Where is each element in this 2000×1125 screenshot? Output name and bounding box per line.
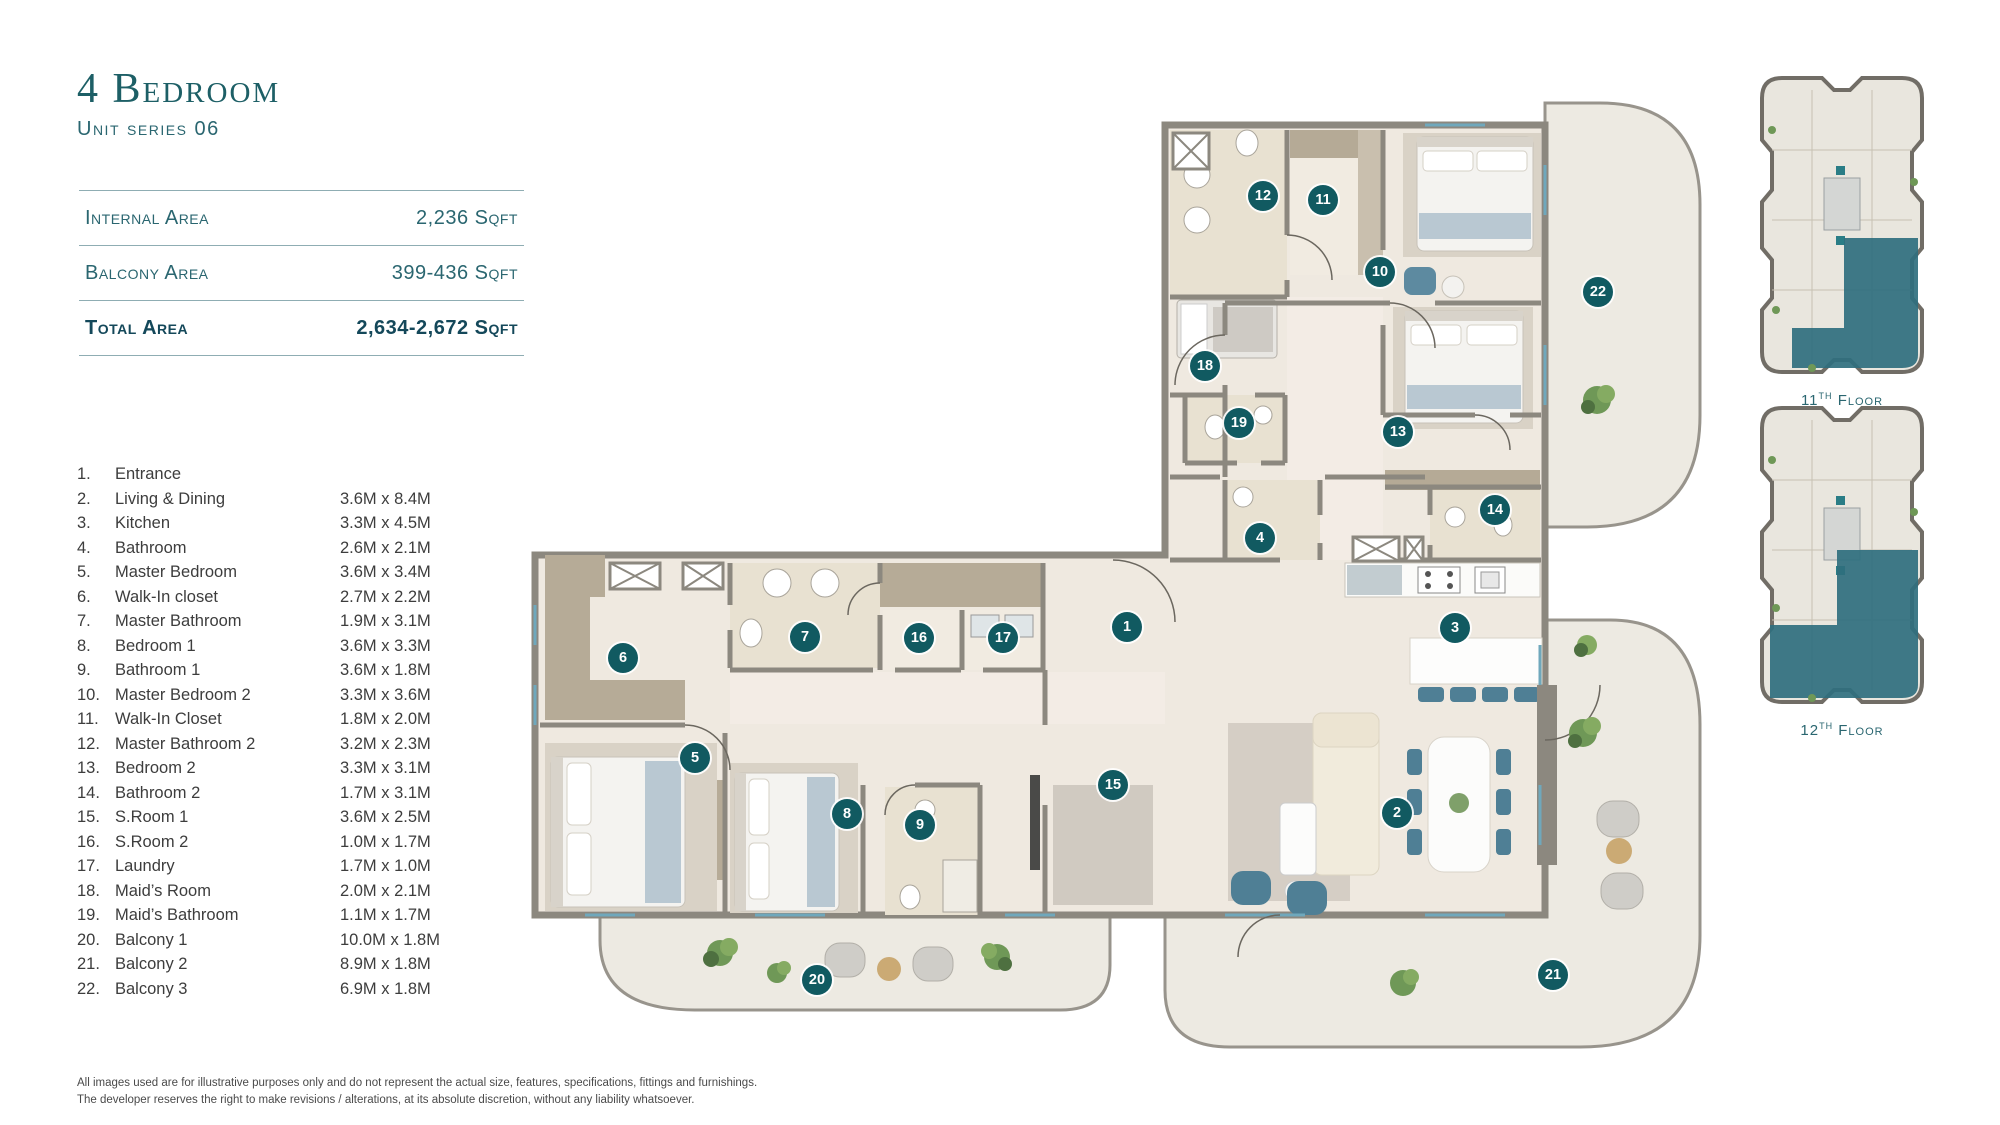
legend-dims: 8.9M x 1.8M (340, 952, 497, 977)
legend-row: 8.Bedroom 13.6M x 3.3M (77, 634, 497, 659)
legend-name: Walk-In closet (115, 585, 340, 610)
keyplan-12th-drawing (1752, 400, 1932, 710)
disclaimer: All images used are for illustrative pur… (77, 1075, 757, 1109)
plan-badge-11: 11 (1308, 185, 1338, 215)
area-row-total: Total Area 2,634-2,672 Sqft (79, 301, 524, 356)
legend-name: Bathroom 2 (115, 781, 340, 806)
floor-ordinal: TH (1819, 721, 1833, 731)
legend-row: 16.S.Room 21.0M x 1.7M (77, 830, 497, 855)
area-value: 2,634-2,672 Sqft (356, 317, 518, 340)
legend-name: S.Room 1 (115, 805, 340, 830)
legend-name: S.Room 2 (115, 830, 340, 855)
legend-no: 16. (77, 830, 115, 855)
legend-name: Bedroom 1 (115, 634, 340, 659)
plan-badge-16: 16 (904, 623, 934, 653)
legend-no: 20. (77, 928, 115, 953)
balcony-3 (1545, 103, 1700, 527)
plan-badge-17: 17 (988, 623, 1018, 653)
legend-row: 21.Balcony 28.9M x 1.8M (77, 952, 497, 977)
legend-no: 22. (77, 977, 115, 1002)
page-title: 4 Bedroom (77, 68, 280, 110)
legend-row: 4.Bathroom2.6M x 2.1M (77, 536, 497, 561)
area-label: Balcony Area (85, 262, 209, 285)
plan-badge-22: 22 (1583, 277, 1613, 307)
legend-row: 5.Master Bedroom3.6M x 3.4M (77, 560, 497, 585)
page-subtitle: Unit series 06 (77, 118, 280, 141)
legend-dims: 1.9M x 3.1M (340, 609, 497, 634)
legend-name: Bedroom 2 (115, 756, 340, 781)
keyplan-12th-label: 12TH Floor (1752, 721, 1932, 739)
area-value: 399-436 Sqft (392, 262, 518, 285)
plan-badge-14: 14 (1480, 495, 1510, 525)
legend-dims: 3.6M x 1.8M (340, 658, 497, 683)
legend-no: 8. (77, 634, 115, 659)
legend-row: 17.Laundry1.7M x 1.0M (77, 854, 497, 879)
legend-row: 20.Balcony 110.0M x 1.8M (77, 928, 497, 953)
legend-no: 2. (77, 487, 115, 512)
room-legend: 1.Entrance2.Living & Dining3.6M x 8.4M3.… (77, 462, 497, 1001)
disclaimer-line: All images used are for illustrative pur… (77, 1075, 757, 1092)
legend-row: 2.Living & Dining3.6M x 8.4M (77, 487, 497, 512)
legend-dims (340, 462, 497, 487)
plan-badge-6: 6 (608, 643, 638, 673)
legend-name: Bathroom 1 (115, 658, 340, 683)
legend-name: Entrance (115, 462, 340, 487)
legend-no: 5. (77, 560, 115, 585)
legend-dims: 2.0M x 2.1M (340, 879, 497, 904)
floor-number: 12 (1800, 722, 1819, 739)
legend-row: 12.Master Bathroom 23.2M x 2.3M (77, 732, 497, 757)
keyplan-12th: 12TH Floor (1752, 400, 1932, 739)
legend-row: 13.Bedroom 23.3M x 3.1M (77, 756, 497, 781)
legend-row: 7.Master Bathroom1.9M x 3.1M (77, 609, 497, 634)
legend-dims: 3.6M x 8.4M (340, 487, 497, 512)
legend-row: 3.Kitchen3.3M x 4.5M (77, 511, 497, 536)
plan-badge-15: 15 (1098, 770, 1128, 800)
legend-no: 6. (77, 585, 115, 610)
area-row-balcony: Balcony Area 399-436 Sqft (79, 246, 524, 301)
plan-badge-9: 9 (905, 810, 935, 840)
area-table: Internal Area 2,236 Sqft Balcony Area 39… (79, 190, 524, 356)
area-row-internal: Internal Area 2,236 Sqft (79, 190, 524, 246)
keyplan-11th-drawing (1752, 70, 1932, 380)
legend-row: 6.Walk-In closet2.7M x 2.2M (77, 585, 497, 610)
legend-no: 14. (77, 781, 115, 806)
floor-plan-drawing (525, 85, 1705, 1055)
legend-row: 18.Maid’s Room2.0M x 2.1M (77, 879, 497, 904)
legend-row: 9.Bathroom 13.6M x 1.8M (77, 658, 497, 683)
plan-badge-21: 21 (1538, 960, 1568, 990)
floor-plan: 12345678910111213141516171819202122 (525, 85, 1705, 1055)
legend-dims: 2.6M x 2.1M (340, 536, 497, 561)
legend-no: 1. (77, 462, 115, 487)
legend-name: Balcony 2 (115, 952, 340, 977)
legend-dims: 3.6M x 2.5M (340, 805, 497, 830)
legend-name: Laundry (115, 854, 340, 879)
legend-no: 3. (77, 511, 115, 536)
disclaimer-line: The developer reserves the right to make… (77, 1092, 757, 1109)
legend-no: 13. (77, 756, 115, 781)
plan-badge-7: 7 (790, 622, 820, 652)
keyplan-11th: 11TH Floor (1752, 70, 1932, 409)
plan-badge-18: 18 (1190, 351, 1220, 381)
legend-name: Master Bathroom 2 (115, 732, 340, 757)
legend-row: 19.Maid’s Bathroom1.1M x 1.7M (77, 903, 497, 928)
legend-name: Maid’s Bathroom (115, 903, 340, 928)
legend-row: 22.Balcony 36.9M x 1.8M (77, 977, 497, 1002)
floor-word: Floor (1838, 722, 1883, 739)
area-label: Internal Area (85, 207, 209, 230)
legend-no: 9. (77, 658, 115, 683)
plan-badge-19: 19 (1224, 408, 1254, 438)
plan-badge-2: 2 (1382, 798, 1412, 828)
plan-badge-8: 8 (832, 799, 862, 829)
plan-badge-10: 10 (1365, 257, 1395, 287)
plan-badge-5: 5 (680, 743, 710, 773)
legend-dims: 3.3M x 4.5M (340, 511, 497, 536)
plan-badge-4: 4 (1245, 523, 1275, 553)
legend-no: 4. (77, 536, 115, 561)
title-block: 4 Bedroom Unit series 06 (77, 68, 280, 141)
plan-badge-12: 12 (1248, 181, 1278, 211)
legend-no: 15. (77, 805, 115, 830)
legend-no: 10. (77, 683, 115, 708)
legend-dims: 3.2M x 2.3M (340, 732, 497, 757)
area-label: Total Area (85, 317, 188, 340)
plan-badge-3: 3 (1440, 613, 1470, 643)
legend-dims: 3.3M x 3.6M (340, 683, 497, 708)
legend-name: Living & Dining (115, 487, 340, 512)
legend-dims: 3.6M x 3.3M (340, 634, 497, 659)
plan-badge-1: 1 (1112, 612, 1142, 642)
legend-no: 12. (77, 732, 115, 757)
legend-row: 11.Walk-In Closet1.8M x 2.0M (77, 707, 497, 732)
legend-row: 14.Bathroom 21.7M x 3.1M (77, 781, 497, 806)
legend-name: Maid’s Room (115, 879, 340, 904)
legend-name: Balcony 3 (115, 977, 340, 1002)
legend-no: 18. (77, 879, 115, 904)
legend-no: 21. (77, 952, 115, 977)
plan-badge-20: 20 (802, 965, 832, 995)
legend-no: 17. (77, 854, 115, 879)
legend-name: Master Bedroom (115, 560, 340, 585)
legend-dims: 1.7M x 3.1M (340, 781, 497, 806)
plan-badge-13: 13 (1383, 417, 1413, 447)
legend-dims: 1.7M x 1.0M (340, 854, 497, 879)
legend-dims: 10.0M x 1.8M (340, 928, 497, 953)
legend-dims: 2.7M x 2.2M (340, 585, 497, 610)
legend-name: Bathroom (115, 536, 340, 561)
legend-dims: 3.3M x 3.1M (340, 756, 497, 781)
legend-row: 10.Master Bedroom 23.3M x 3.6M (77, 683, 497, 708)
legend-row: 1.Entrance (77, 462, 497, 487)
legend-dims: 1.1M x 1.7M (340, 903, 497, 928)
legend-dims: 3.6M x 3.4M (340, 560, 497, 585)
legend-name: Kitchen (115, 511, 340, 536)
legend-no: 7. (77, 609, 115, 634)
legend-name: Master Bathroom (115, 609, 340, 634)
legend-name: Walk-In Closet (115, 707, 340, 732)
legend-dims: 1.0M x 1.7M (340, 830, 497, 855)
area-value: 2,236 Sqft (416, 207, 518, 230)
legend-dims: 1.8M x 2.0M (340, 707, 497, 732)
legend-no: 11. (77, 707, 115, 732)
legend-name: Master Bedroom 2 (115, 683, 340, 708)
legend-dims: 6.9M x 1.8M (340, 977, 497, 1002)
legend-name: Balcony 1 (115, 928, 340, 953)
legend-row: 15.S.Room 13.6M x 2.5M (77, 805, 497, 830)
legend-no: 19. (77, 903, 115, 928)
